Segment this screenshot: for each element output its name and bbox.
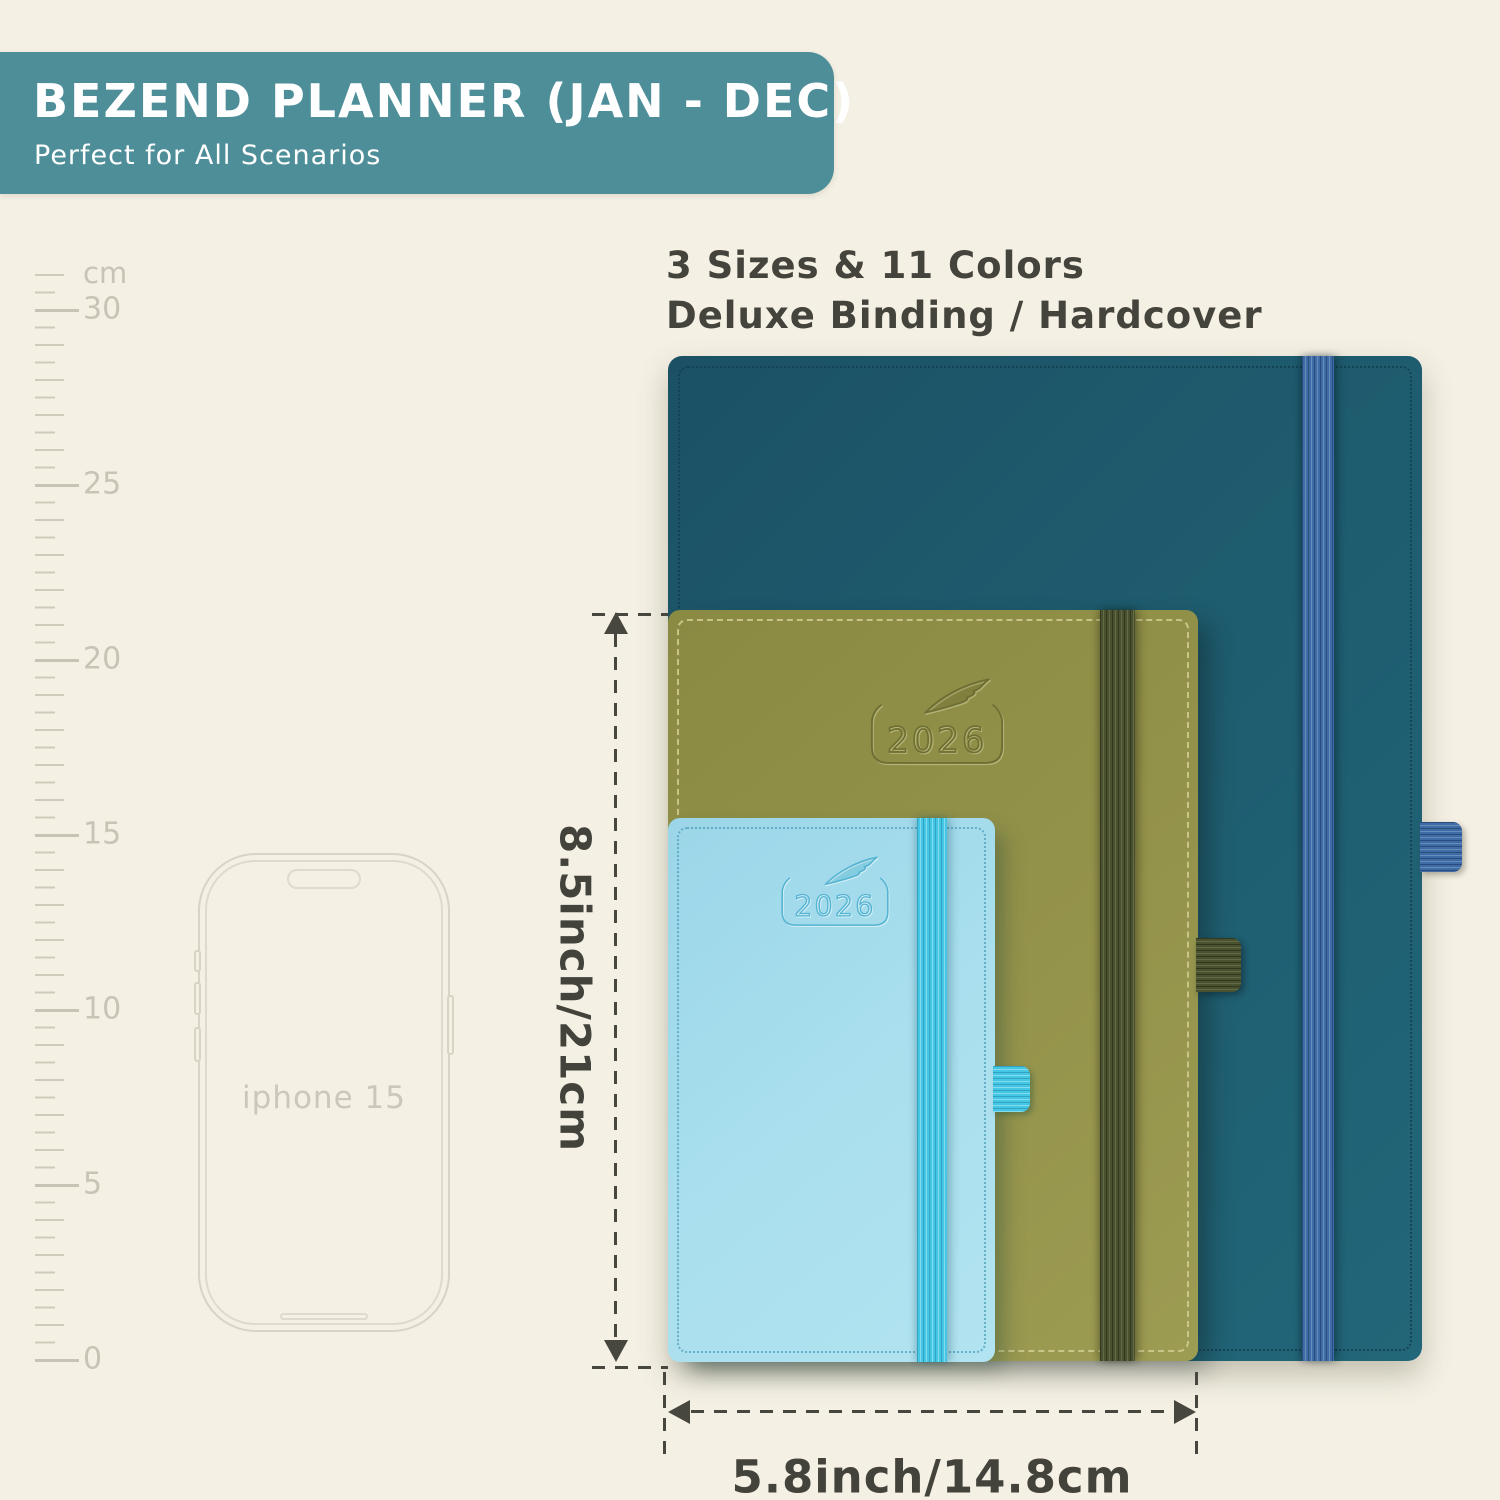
- iphone-home-bar: [280, 1313, 368, 1320]
- ruler-number: 10: [83, 992, 121, 1027]
- embossed-2026-logo: 2026 2026: [863, 674, 1011, 769]
- width-dimension-line: [691, 1410, 1174, 1413]
- cm-ruler: cm 302520151050: [35, 268, 175, 1368]
- iphone-outline: iphone 15: [198, 853, 450, 1332]
- page-subtitle: Perfect for All Scenarios: [34, 140, 381, 171]
- ruler-number: 15: [83, 817, 121, 852]
- ruler-major-ticks: [35, 268, 79, 1366]
- height-dimension-line: [614, 634, 617, 1340]
- height-dimension-label: 8.5inch/21cm: [551, 824, 600, 1152]
- pen-loop: [1420, 822, 1462, 872]
- iphone-dynamic-island: [287, 869, 361, 889]
- dimension-extent-line-bottom: [592, 1366, 668, 1369]
- iphone-volume-up-button: [194, 982, 201, 1015]
- arrow-left-icon: [668, 1400, 690, 1424]
- title-banner: BEZEND PLANNER (JAN - DEC) Perfect for A…: [0, 52, 834, 194]
- svg-text:2026: 2026: [794, 890, 875, 923]
- page-title: BEZEND PLANNER (JAN - DEC): [33, 74, 855, 128]
- iphone-mute-button: [194, 950, 201, 972]
- pen-loop: [1196, 938, 1241, 992]
- width-dimension-label: 5.8inch/14.8cm: [732, 1451, 1133, 1500]
- ruler-number: 20: [83, 642, 121, 677]
- arrow-right-icon: [1174, 1400, 1196, 1424]
- elastic-band: [917, 818, 947, 1362]
- iphone-label: iphone 15: [200, 1080, 448, 1116]
- headline-sizes-colors: 3 Sizes & 11 Colors: [666, 244, 1085, 287]
- iphone-power-button: [447, 995, 454, 1055]
- elastic-band: [1100, 610, 1135, 1361]
- arrow-up-icon: [604, 612, 628, 634]
- arrow-down-icon: [604, 1340, 628, 1362]
- elastic-band: [1302, 356, 1334, 1361]
- headline-binding: Deluxe Binding / Hardcover: [666, 294, 1263, 337]
- pen-loop: [993, 1066, 1030, 1112]
- dimension-extent-line-left: [663, 1372, 666, 1457]
- embossed-2026-logo: 2026 2026: [775, 853, 895, 930]
- ruler-number: 0: [83, 1342, 102, 1377]
- ruler-number: 5: [83, 1167, 102, 1202]
- svg-text:2026: 2026: [887, 721, 987, 761]
- ruler-number: 25: [83, 467, 121, 502]
- ruler-number: 30: [83, 292, 121, 327]
- ruler-unit-label: cm: [83, 256, 127, 290]
- product-image: BEZEND PLANNER (JAN - DEC) Perfect for A…: [0, 0, 1500, 1500]
- iphone-volume-down-button: [194, 1027, 201, 1062]
